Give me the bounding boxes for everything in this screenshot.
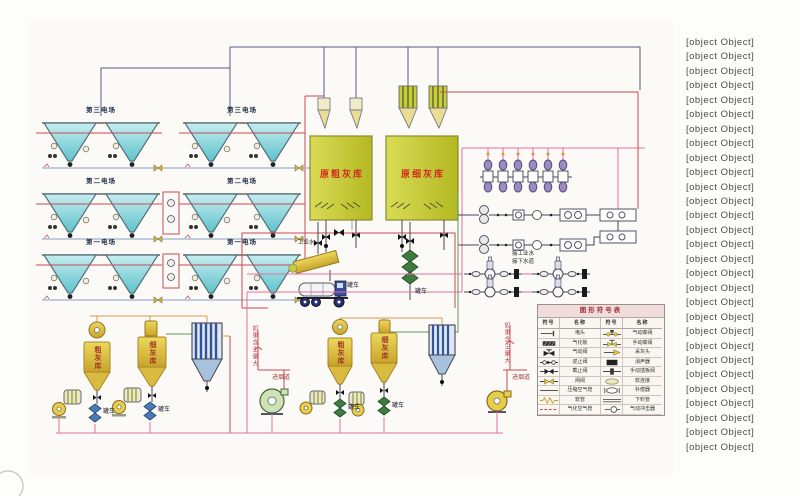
symbol-name: 手动蝶阀 (623, 339, 662, 349)
symbol-name: 气动冲击器 (623, 405, 662, 415)
esp-field-label: 第一电场 (86, 236, 116, 246)
symbol-glyph (538, 396, 560, 406)
legend-item: [object Object] (686, 209, 798, 223)
silo-label-fine: 细灰库 (147, 341, 157, 365)
symbol-glyph (538, 339, 560, 349)
legend-item: [object Object] (686, 195, 798, 209)
to-flue-label: 进烟道 (272, 372, 290, 381)
esp-field-label: 第一电场 (227, 236, 257, 246)
legend-item: [object Object] (686, 340, 798, 354)
legend-item: [object Object] (686, 152, 798, 166)
legend-item: [object Object] (686, 108, 798, 122)
legend-item: [object Object] (686, 325, 798, 339)
legend-item: [object Object] (686, 296, 798, 310)
legend-item: [object Object] (686, 94, 798, 108)
symbol-name: 气化板 (560, 339, 601, 349)
symbol-glyph (538, 386, 560, 396)
legend-item: [object Object] (686, 181, 798, 195)
flyash-system-diagram-page: 第三电场 第三电场 第二电场 第二电场 第一电场 第一电场 原粗灰库 原细灰库 … (0, 0, 800, 496)
tanker-label: 罐车 (158, 404, 170, 413)
symbol-name: 气动蝶阀 (623, 329, 662, 339)
legend-item: [object Object] (686, 441, 798, 455)
connect-industrial-water-label: 接工业水 (512, 249, 534, 257)
symbol-name: 截止阀 (560, 367, 601, 377)
legend-item: [object Object] (686, 368, 798, 382)
symbol-table-row: 截止阀 手动插板阀 (538, 367, 664, 377)
symbol-table-row: 堵头 气动蝶阀 (538, 329, 664, 339)
symbol-name: 堵头 (560, 329, 601, 339)
tanker-label: 罐车 (348, 402, 360, 411)
symbol-table-header: 符号名称符号名称 (538, 318, 664, 329)
legend-item: [object Object] (686, 397, 798, 411)
symbol-name: 软连接 (623, 377, 662, 387)
connect-sewer-label: 接下水道 (512, 257, 534, 265)
tanker-label: 罐车 (103, 406, 115, 415)
legend-item: [object Object] (686, 123, 798, 137)
if-dust-high-note: 如果含尘量大 (502, 322, 511, 364)
symbol-name: 手动插板阀 (623, 367, 662, 377)
legend-item: [object Object] (686, 224, 798, 238)
symbol-name: 逆止阀 (560, 358, 601, 368)
silo-label-coarse: 粗灰库 (335, 341, 345, 365)
if-dust-high-note: 如果含尘量大 (250, 325, 259, 367)
symbol-name: 压缩空气管 (560, 386, 601, 396)
symbol-table-row: 气化空气管 气动冲击器 (538, 405, 664, 415)
legend-item: [object Object] (686, 253, 798, 267)
esp-field-label: 第三电场 (227, 104, 257, 114)
tank-label-raw-fine: 原细灰库 (401, 167, 445, 180)
symbol-table-row: 软管 下料管 (538, 396, 664, 406)
legend-item: [object Object] (686, 267, 798, 281)
to-flue-label: 进烟道 (512, 372, 530, 381)
legend-item: [object Object] (686, 137, 798, 151)
legend-item: [object Object] (686, 412, 798, 426)
tank-label-raw-coarse: 原粗灰库 (320, 167, 364, 180)
symbol-glyph (601, 386, 623, 396)
symbol-name: 软管 (560, 396, 601, 406)
symbol-glyph (601, 405, 623, 415)
legend-item: [object Object] (686, 282, 798, 296)
tanker-label: 罐车 (392, 400, 404, 409)
symbol-table: 图形符号表 符号名称符号名称 堵头 气动蝶阀 气化板 手动蝶阀 (537, 304, 665, 416)
symbol-glyph (601, 348, 623, 358)
symbol-table-row: 气动阀 采灰头 (538, 348, 664, 358)
symbol-name: 闸阀 (560, 377, 601, 387)
symbol-glyph (538, 377, 560, 387)
symbol-glyph (538, 405, 560, 415)
symbol-name: 补偿器 (623, 386, 662, 396)
esp-field-label: 第二电场 (227, 175, 257, 185)
symbol-glyph (538, 348, 560, 358)
legend-item: [object Object] (686, 426, 798, 440)
industrial-water-label: 工业水 (298, 238, 315, 246)
silo-label-coarse: 粗灰库 (92, 346, 102, 370)
symbol-name: 气化空气管 (560, 405, 601, 415)
symbol-name: 采灰头 (623, 348, 662, 358)
symbol-name: 下料管 (623, 396, 662, 406)
legend-item: [object Object] (686, 65, 798, 79)
symbol-glyph (601, 339, 623, 349)
legend-item: [object Object] (686, 166, 798, 180)
symbol-glyph (601, 329, 623, 339)
process-diagram-graphics (0, 0, 800, 496)
esp-field-label: 第三电场 (86, 104, 116, 114)
symbol-glyph (601, 367, 623, 377)
legend-item: [object Object] (686, 311, 798, 325)
legend-item: [object Object] (686, 383, 798, 397)
symbol-glyph (601, 396, 623, 406)
legend-item: [object Object] (686, 36, 798, 50)
symbol-table-row: 闸阀 软连接 (538, 377, 664, 387)
legend-item: [object Object] (686, 79, 798, 93)
symbol-table-row: 逆止阀 消声器 (538, 358, 664, 368)
symbol-table-title: 图形符号表 (538, 305, 664, 318)
symbol-table-row: 气化板 手动蝶阀 (538, 339, 664, 349)
legend-item: [object Object] (686, 238, 798, 252)
tanker-label: 罐车 (415, 286, 427, 295)
legend-item: [object Object] (686, 354, 798, 368)
symbol-glyph (601, 377, 623, 387)
symbol-glyph (538, 329, 560, 339)
symbol-name: 消声器 (623, 358, 662, 368)
equipment-legend: [object Object] [object Object] [object … (686, 36, 798, 455)
symbol-glyph (538, 358, 560, 368)
symbol-name: 气动阀 (560, 348, 601, 358)
silo-label-fine: 细灰库 (379, 336, 389, 360)
symbol-table-row: 压缩空气管 补偿器 (538, 386, 664, 396)
esp-field-label: 第二电场 (86, 175, 116, 185)
symbol-glyph (601, 358, 623, 368)
tanker-label: 罐车 (347, 280, 359, 289)
legend-item: [object Object] (686, 50, 798, 64)
symbol-glyph (538, 367, 560, 377)
